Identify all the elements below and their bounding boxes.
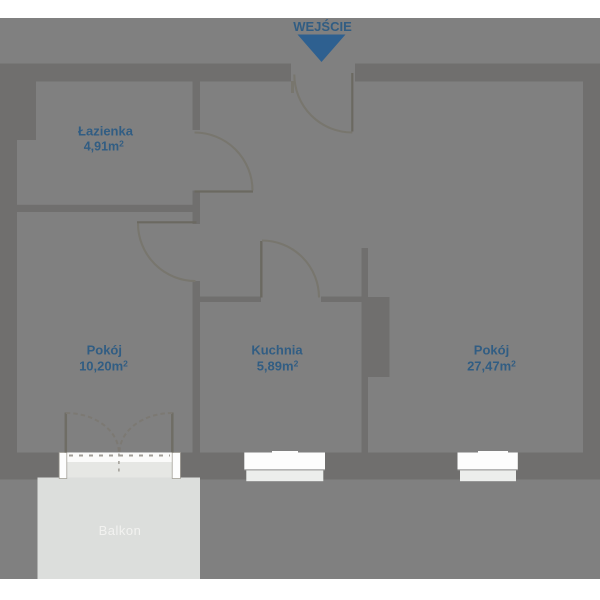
svg-text:27,47m2: 27,47m2 xyxy=(467,359,516,374)
svg-text:Kuchnia: Kuchnia xyxy=(251,343,303,358)
svg-text:5,89m2: 5,89m2 xyxy=(257,359,299,374)
svg-text:Balkon: Balkon xyxy=(99,523,142,538)
svg-text:WEJŚCIE: WEJŚCIE xyxy=(293,19,352,34)
svg-text:Pokój: Pokój xyxy=(87,343,122,358)
svg-text:Łazienka: Łazienka xyxy=(78,124,134,139)
svg-text:4,91m2: 4,91m2 xyxy=(84,139,124,154)
svg-text:10,20m2: 10,20m2 xyxy=(79,359,128,374)
svg-text:Pokój: Pokój xyxy=(474,343,509,358)
